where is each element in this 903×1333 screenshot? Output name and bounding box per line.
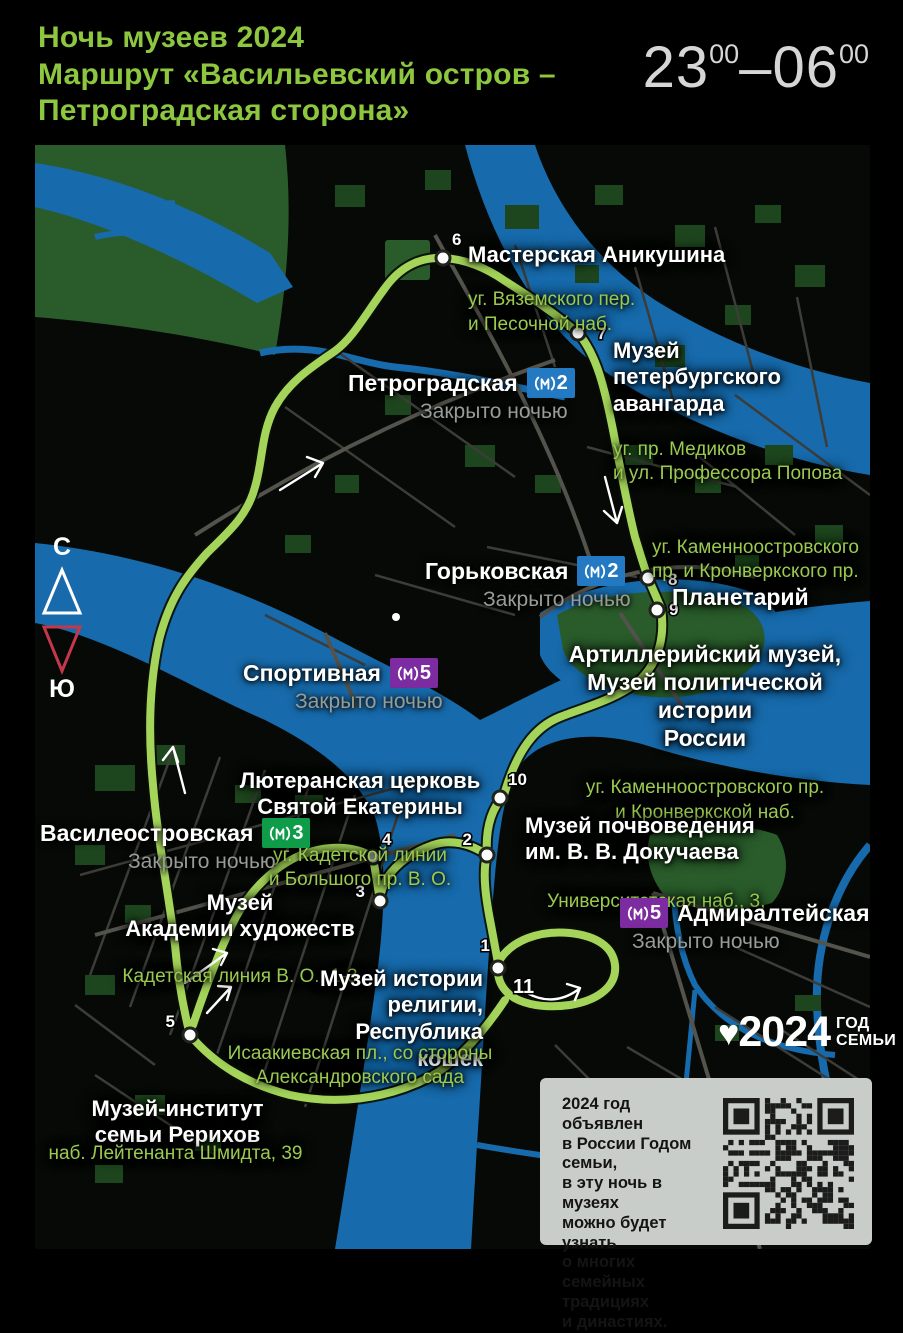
museum-label-avangard: Музей петербургского авангарда уг. пр. М… xyxy=(613,318,842,506)
stop-number-6: 6 xyxy=(452,230,461,249)
metro-line-badge-icon: 5 xyxy=(620,898,668,928)
metro-station-admiralteyskaya: 5 Адмиралтейская Закрыто ночью xyxy=(620,898,870,954)
compass-north-label: С xyxy=(53,533,71,561)
stop-dot-1 xyxy=(491,961,505,975)
stop-dot-5 xyxy=(183,1028,197,1042)
museum-night-poster: { "header": { "title": "Ночь музеев 2024… xyxy=(0,0,903,1280)
stop-number-5: 5 xyxy=(166,1012,175,1031)
stop-number-10: 10 xyxy=(508,770,527,789)
metro-line-badge-icon: 3 xyxy=(262,818,310,848)
museum-label-roerich-address: наб. Лейтенанта Шмидта, 39 xyxy=(28,1122,323,1186)
poi-dot xyxy=(392,613,400,621)
logo-caption-line1: ГОД xyxy=(836,1016,896,1033)
qr-info-card: 2024 год объявлен в России Годом семьи, … xyxy=(540,1078,872,1245)
heart-icon: ♥ xyxy=(718,1015,739,1051)
stop-number-11: 11 xyxy=(513,976,534,998)
poster-title: Ночь музеев 2024 Маршрут «Васильевский о… xyxy=(38,20,556,130)
metro-station-vasileostrovskaya: Василеостровская 3 Закрыто ночью xyxy=(40,818,310,874)
stop-dot-10 xyxy=(493,791,507,805)
year-of-family-logo: ♥ 2024 ГОД СЕМЬИ xyxy=(718,1008,896,1057)
metro-station-petrogradskaya: Петроградская 2 Закрыто ночью xyxy=(348,368,575,424)
stop-dot-9 xyxy=(650,603,664,617)
metro-line-badge-icon: 2 xyxy=(527,368,575,398)
event-time: 2300–0600 xyxy=(643,34,869,101)
qr-code xyxy=(723,1098,854,1229)
metro-station-sportivnaya: Спортивная 5 Закрыто ночью xyxy=(243,658,443,714)
compass-south-label: Ю xyxy=(49,675,75,703)
metro-line-badge-icon: 2 xyxy=(577,556,625,586)
metro-line-badge-icon: 5 xyxy=(390,658,438,688)
qr-caption: 2024 год объявлен в России Годом семьи, … xyxy=(562,1095,707,1231)
metro-station-gorkovskaya: Горьковская 2 Закрыто ночью xyxy=(425,556,631,612)
stop-dot-6 xyxy=(436,251,450,265)
logo-caption-line2: СЕМЬИ xyxy=(836,1033,896,1050)
